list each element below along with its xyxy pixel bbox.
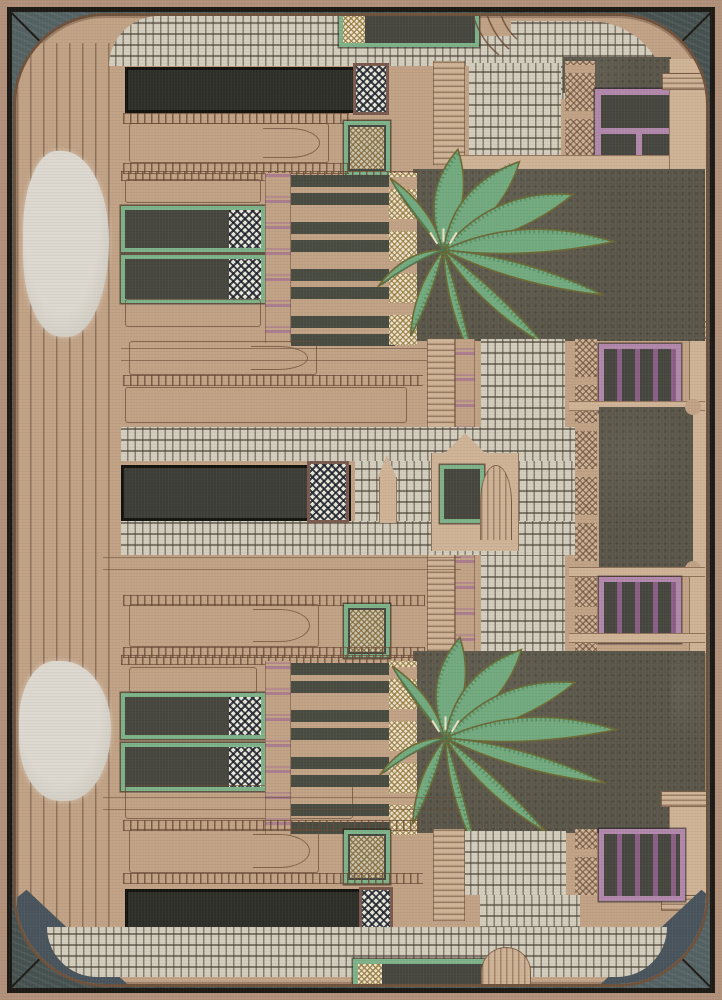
lattice-block-mid-bar (307, 461, 349, 523)
arch-tip (253, 834, 310, 868)
gold-lattice-end (343, 15, 365, 43)
arch-panel (129, 829, 319, 873)
tower-dome-column (480, 465, 512, 540)
sill-band (569, 567, 705, 577)
architrave-bar-top (125, 67, 367, 113)
cornice-line (103, 797, 461, 798)
lattice-end (229, 697, 261, 735)
purple-window-4 (599, 829, 685, 901)
outline-panel (129, 667, 257, 693)
minaret-shaft (379, 477, 397, 523)
lattice-column-lower-right (575, 829, 597, 895)
cornice-line (103, 569, 461, 570)
cornice-line (103, 809, 461, 810)
tower-window (440, 465, 484, 523)
arch-tip (251, 346, 308, 370)
courtyard-lower-right (671, 651, 705, 791)
rug-field (13, 13, 709, 987)
lattice-end (229, 259, 261, 299)
lattice-end (229, 747, 261, 787)
capital-upper-right (662, 73, 709, 90)
capital-lower-right (661, 791, 709, 807)
arch-panel (129, 604, 319, 647)
lattice-column-mid-right (575, 339, 597, 653)
green-window-w3 (121, 693, 265, 739)
dentil-row (123, 873, 423, 884)
lattice-end (229, 210, 261, 248)
mosaic-column-upper (481, 339, 565, 429)
window-panes (604, 349, 676, 407)
arch-panel (129, 341, 317, 375)
capital-notch (685, 399, 701, 415)
silver-patch-lower (19, 661, 111, 801)
scribble-column-upper (265, 173, 291, 343)
silver-patch-upper (23, 151, 109, 337)
palm-tree-top (353, 135, 653, 371)
fluted-column-lower (433, 829, 465, 921)
lattice-block-top-bar (353, 63, 389, 115)
arch-panel (129, 123, 329, 163)
outline-panel (125, 179, 261, 203)
cornice-line (103, 557, 461, 558)
gold-lattice-end (358, 964, 382, 987)
green-window-w4 (121, 743, 265, 791)
lattice-fill (350, 836, 384, 878)
mosaic-panel-lower-right (464, 831, 566, 895)
outline-panel (125, 387, 407, 423)
outline-panel (125, 299, 261, 327)
arch-tip (263, 128, 320, 158)
green-banner-window-bottom (353, 959, 493, 987)
palm-frond-sketch-top (465, 13, 529, 59)
tower-green-window (431, 453, 519, 551)
dentil-row (123, 375, 423, 386)
window-panes (604, 834, 680, 896)
slate-panel-right (599, 407, 693, 569)
cobble-arc-top-left (109, 16, 364, 66)
green-window-w1 (121, 206, 265, 252)
green-banner-window-top (339, 13, 479, 47)
arch-tip (253, 609, 310, 642)
rug-photo (0, 0, 722, 1000)
green-window-w2 (121, 255, 265, 303)
